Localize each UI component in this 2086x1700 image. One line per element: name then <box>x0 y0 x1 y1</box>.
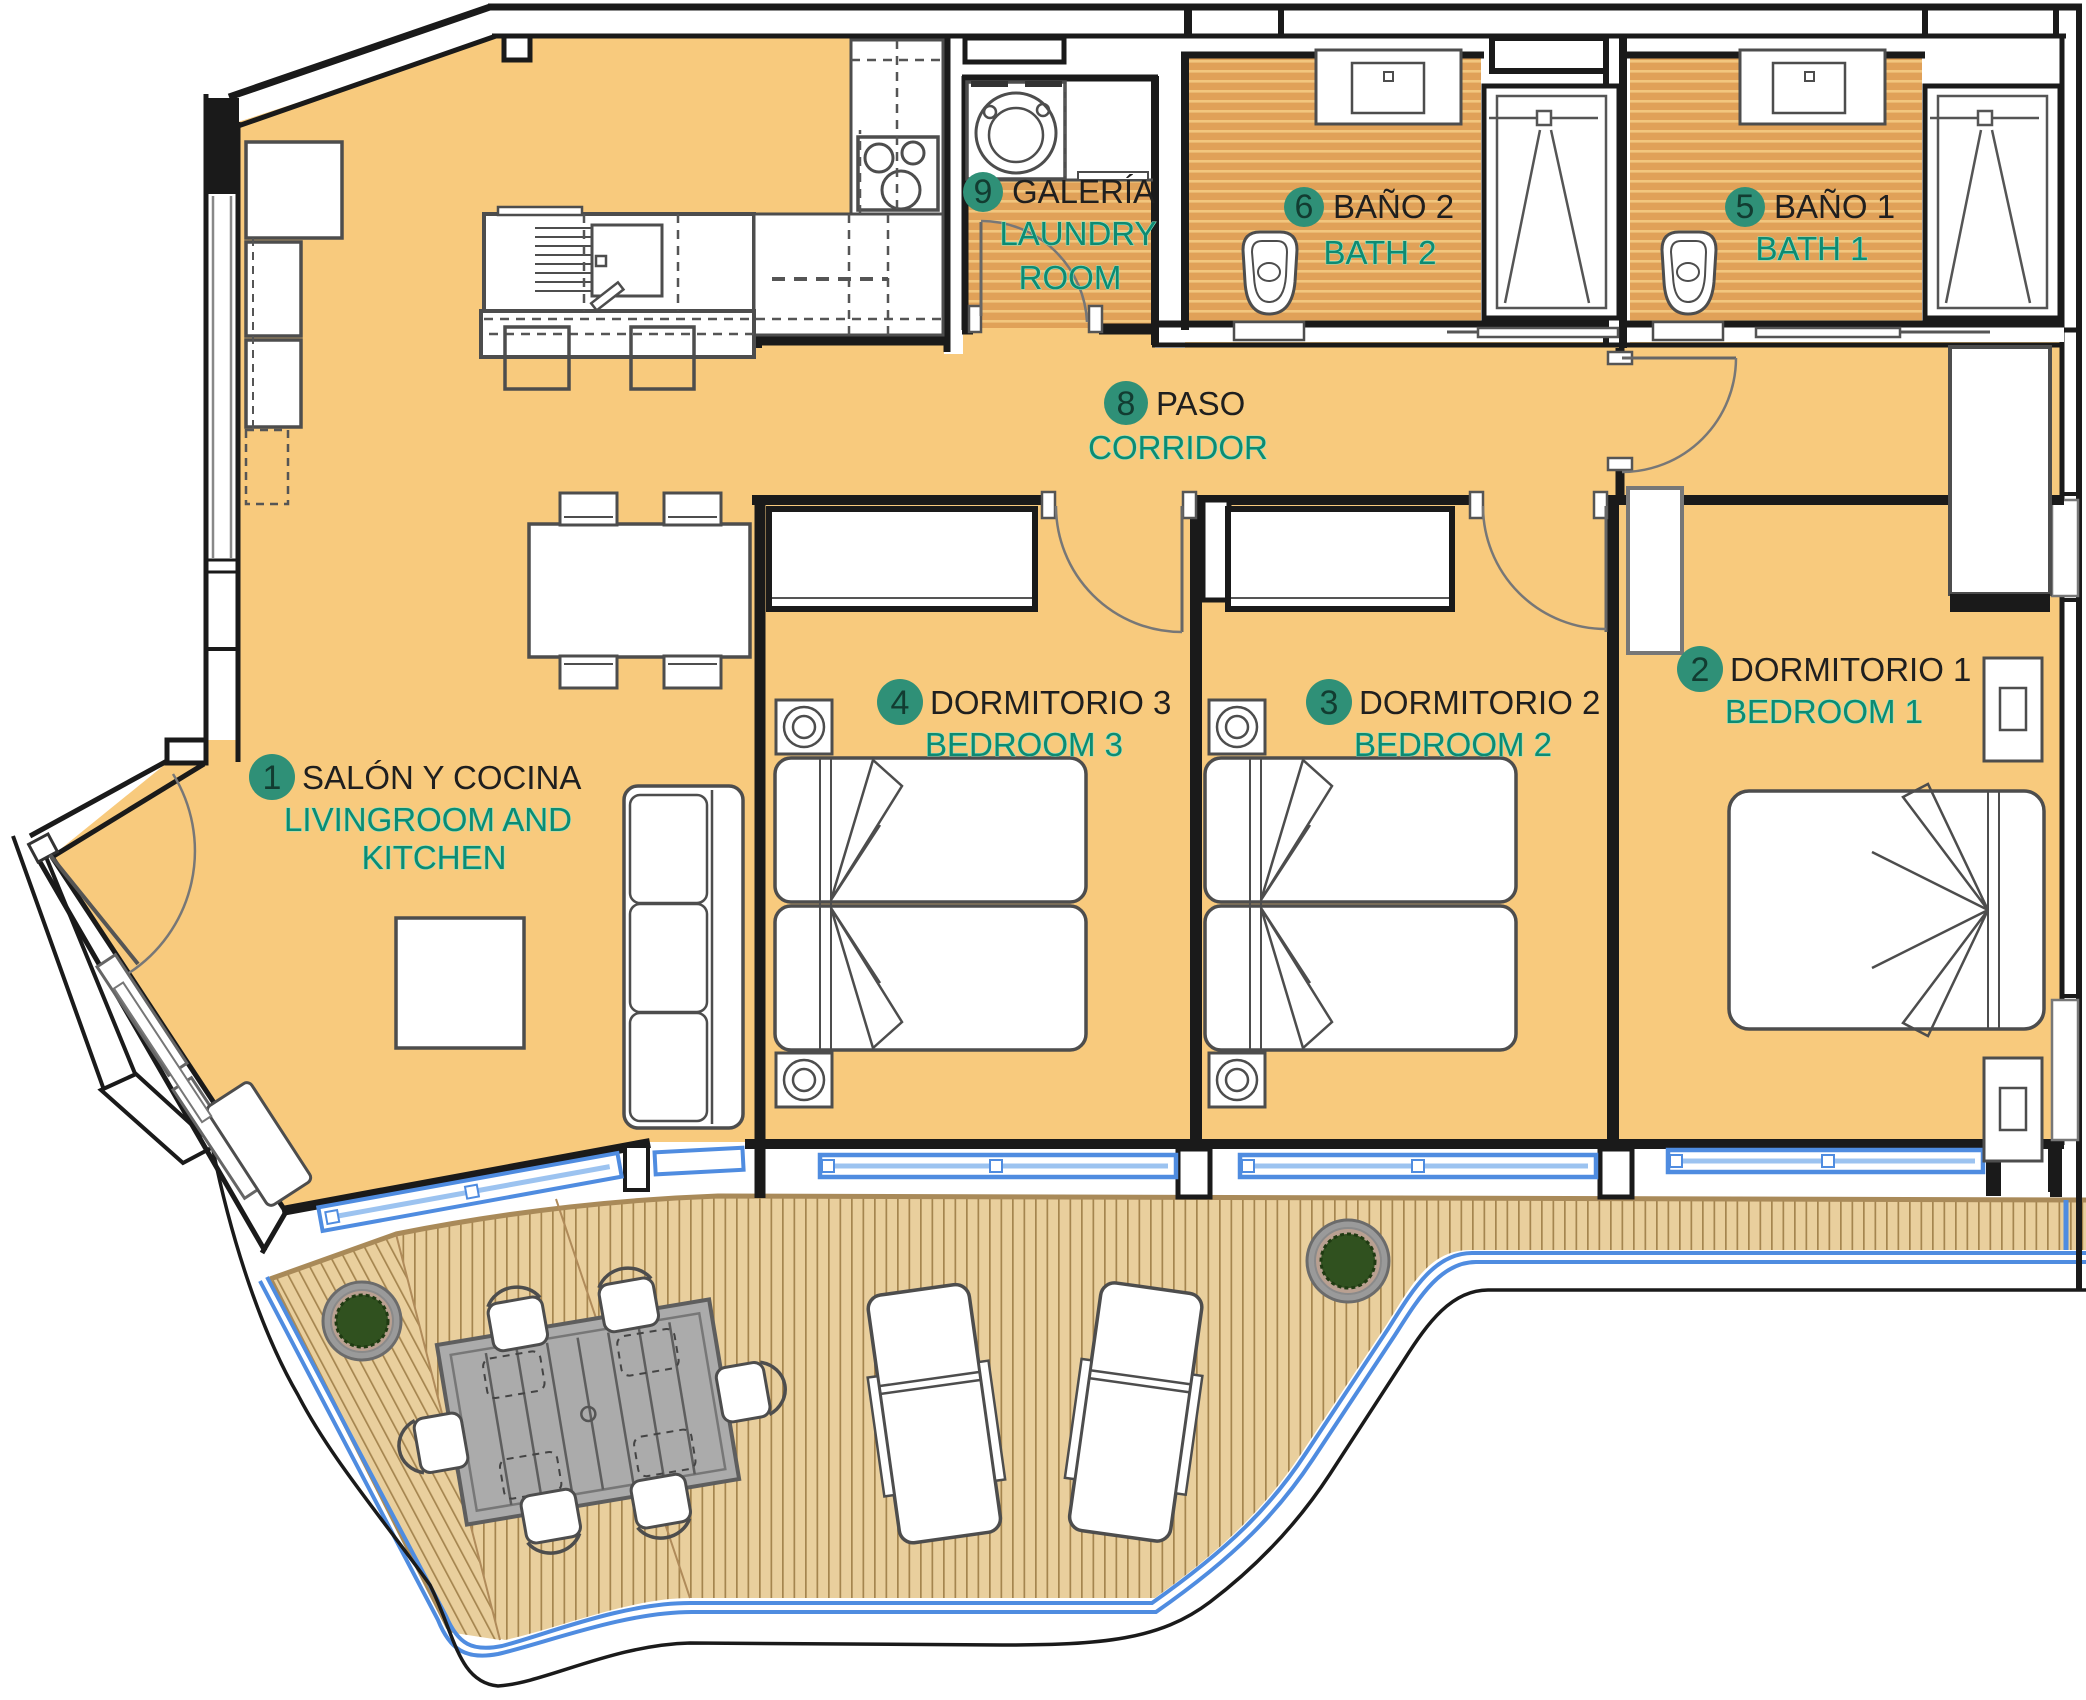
svg-text:8: 8 <box>1117 385 1136 423</box>
svg-text:GALERÍA: GALERÍA <box>1012 173 1155 210</box>
svg-text:BEDROOM 2: BEDROOM 2 <box>1354 726 1552 763</box>
svg-text:BAÑO 2: BAÑO 2 <box>1333 188 1454 225</box>
svg-text:2: 2 <box>1691 651 1710 689</box>
svg-text:KITCHEN: KITCHEN <box>362 839 507 876</box>
svg-text:BAÑO 1: BAÑO 1 <box>1774 188 1895 225</box>
svg-text:9: 9 <box>974 173 993 211</box>
svg-text:BATH 2: BATH 2 <box>1323 234 1436 271</box>
svg-text:5: 5 <box>1736 188 1755 226</box>
svg-text:3: 3 <box>1320 684 1339 722</box>
svg-text:PASO: PASO <box>1156 385 1245 422</box>
svg-text:BEDROOM 1: BEDROOM 1 <box>1725 693 1923 730</box>
svg-text:DORMITORIO 3: DORMITORIO 3 <box>930 684 1171 721</box>
svg-text:DORMITORIO 1: DORMITORIO 1 <box>1730 651 1971 688</box>
svg-text:6: 6 <box>1295 188 1314 226</box>
svg-text:ROOM: ROOM <box>1019 259 1122 296</box>
svg-text:BEDROOM 3: BEDROOM 3 <box>925 726 1123 763</box>
svg-text:SALÓN Y COCINA: SALÓN Y COCINA <box>302 759 581 796</box>
svg-text:4: 4 <box>891 684 910 722</box>
svg-text:BATH 1: BATH 1 <box>1755 230 1868 267</box>
svg-text:1: 1 <box>263 759 282 797</box>
svg-text:LIVINGROOM AND: LIVINGROOM AND <box>284 801 572 838</box>
svg-text:CORRIDOR: CORRIDOR <box>1088 429 1268 466</box>
svg-text:DORMITORIO 2: DORMITORIO 2 <box>1359 684 1600 721</box>
svg-text:LAUNDRY: LAUNDRY <box>999 215 1156 252</box>
